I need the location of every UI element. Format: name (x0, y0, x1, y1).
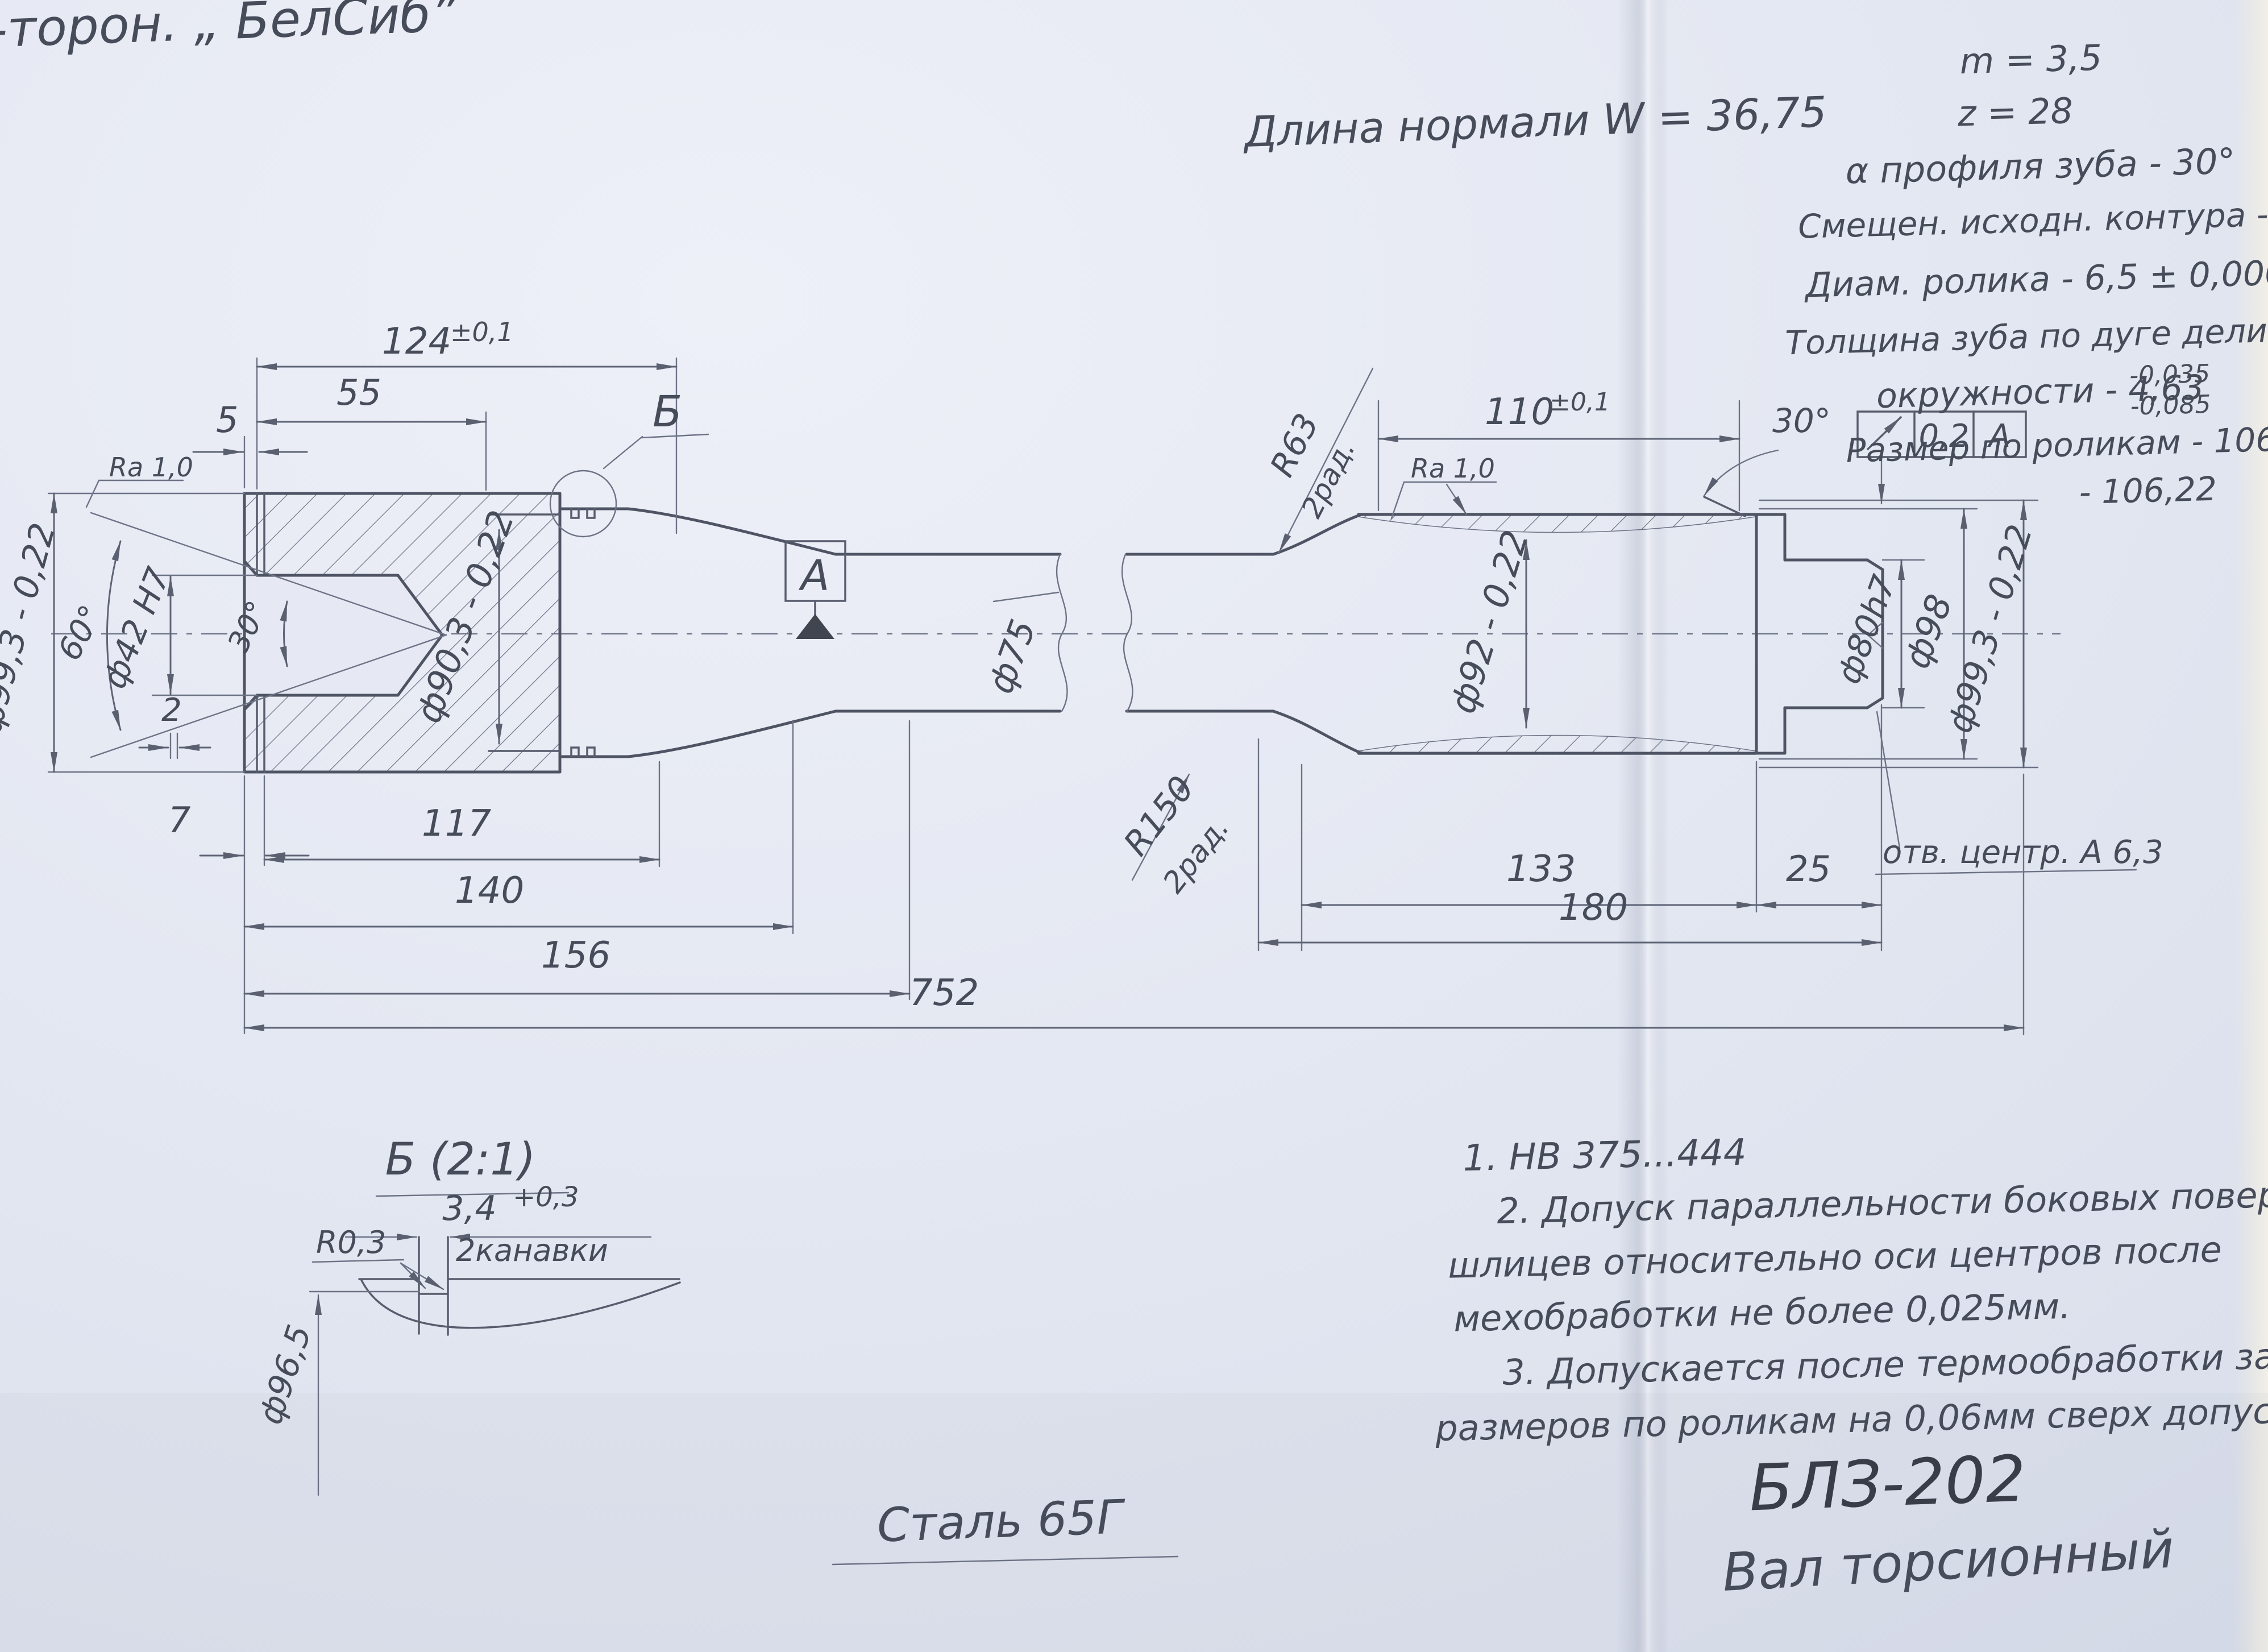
ra-left-label: Ra 1,0 (109, 452, 193, 483)
note-1: 1. НВ 375...444 (1463, 1132, 1747, 1180)
detail-b-width: 3,4 (442, 1189, 496, 1228)
dim-124-tol: ±0,1 (450, 317, 514, 347)
doc-number: БЛЗ-202 (1748, 1442, 2027, 1526)
runout-datum: А (1987, 418, 2011, 455)
view-b-label: Б (653, 386, 682, 437)
param-roller-size-2: - 106,22 (2079, 470, 2217, 512)
param-teeth-count: z = 28 (1957, 90, 2074, 134)
param-tooth-tol-upper: -0,035 (2129, 359, 2211, 391)
detail-b-width-tol: +0,3 (513, 1181, 579, 1213)
param-module: m = 3,5 (1959, 37, 2103, 82)
detail-b-grooves-note: 2канавки (456, 1232, 608, 1268)
dim-180-label: 180 (1559, 887, 1628, 929)
runout-value: 0,2 (1918, 418, 1969, 455)
param-tooth-tol-lower: -0,085 (2130, 390, 2211, 421)
detail-b-title: Б (2:1) (385, 1134, 536, 1185)
dim-5-label: 5 (216, 399, 238, 441)
dim-2-label: 2 (161, 692, 182, 729)
dim-133-label: 133 (1506, 848, 1576, 890)
center-hole-label: отв. центр. А 6,3 (1883, 834, 2163, 871)
datum-a-letter: А (799, 551, 830, 600)
dim-110-label: 110 (1485, 391, 1554, 433)
drawing-sheet: -торон. „ БелСиб” Длина нормали W = 36,7… (0, 0, 2268, 1652)
dim-110-tol: ±0,1 (1550, 388, 1610, 417)
dim-55-label: 55 (337, 372, 381, 413)
material-label: Сталь 65Г (876, 1490, 1127, 1553)
dim-117-label: 117 (422, 803, 491, 845)
detail-b-fillet: R0,3 (316, 1225, 386, 1260)
dim-124-label: 124 (382, 321, 451, 363)
dim-156-label: 156 (541, 935, 610, 977)
angle-30-spline-label: 30° (1772, 401, 1831, 440)
ra-right-label: Ra 1,0 (1411, 453, 1495, 484)
dim-752-label: 752 (909, 972, 979, 1014)
dim-140-label: 140 (455, 870, 524, 912)
dim-25-label: 25 (1786, 848, 1831, 890)
dim-7-label: 7 (168, 799, 190, 841)
